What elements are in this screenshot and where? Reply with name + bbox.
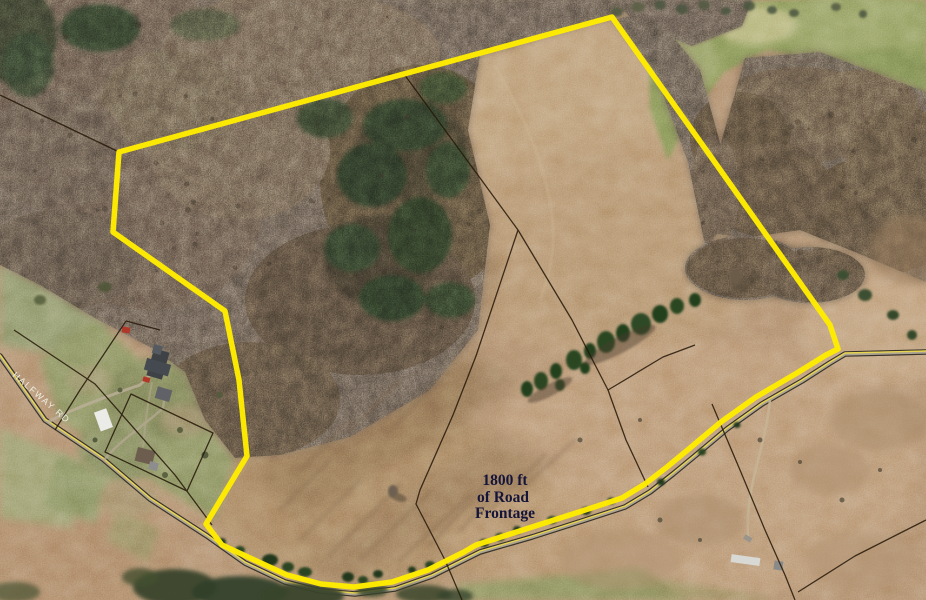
svg-text:of Road: of Road bbox=[477, 489, 529, 506]
svg-text:Frontage: Frontage bbox=[475, 505, 535, 522]
svg-text:1800 ft: 1800 ft bbox=[482, 472, 528, 489]
